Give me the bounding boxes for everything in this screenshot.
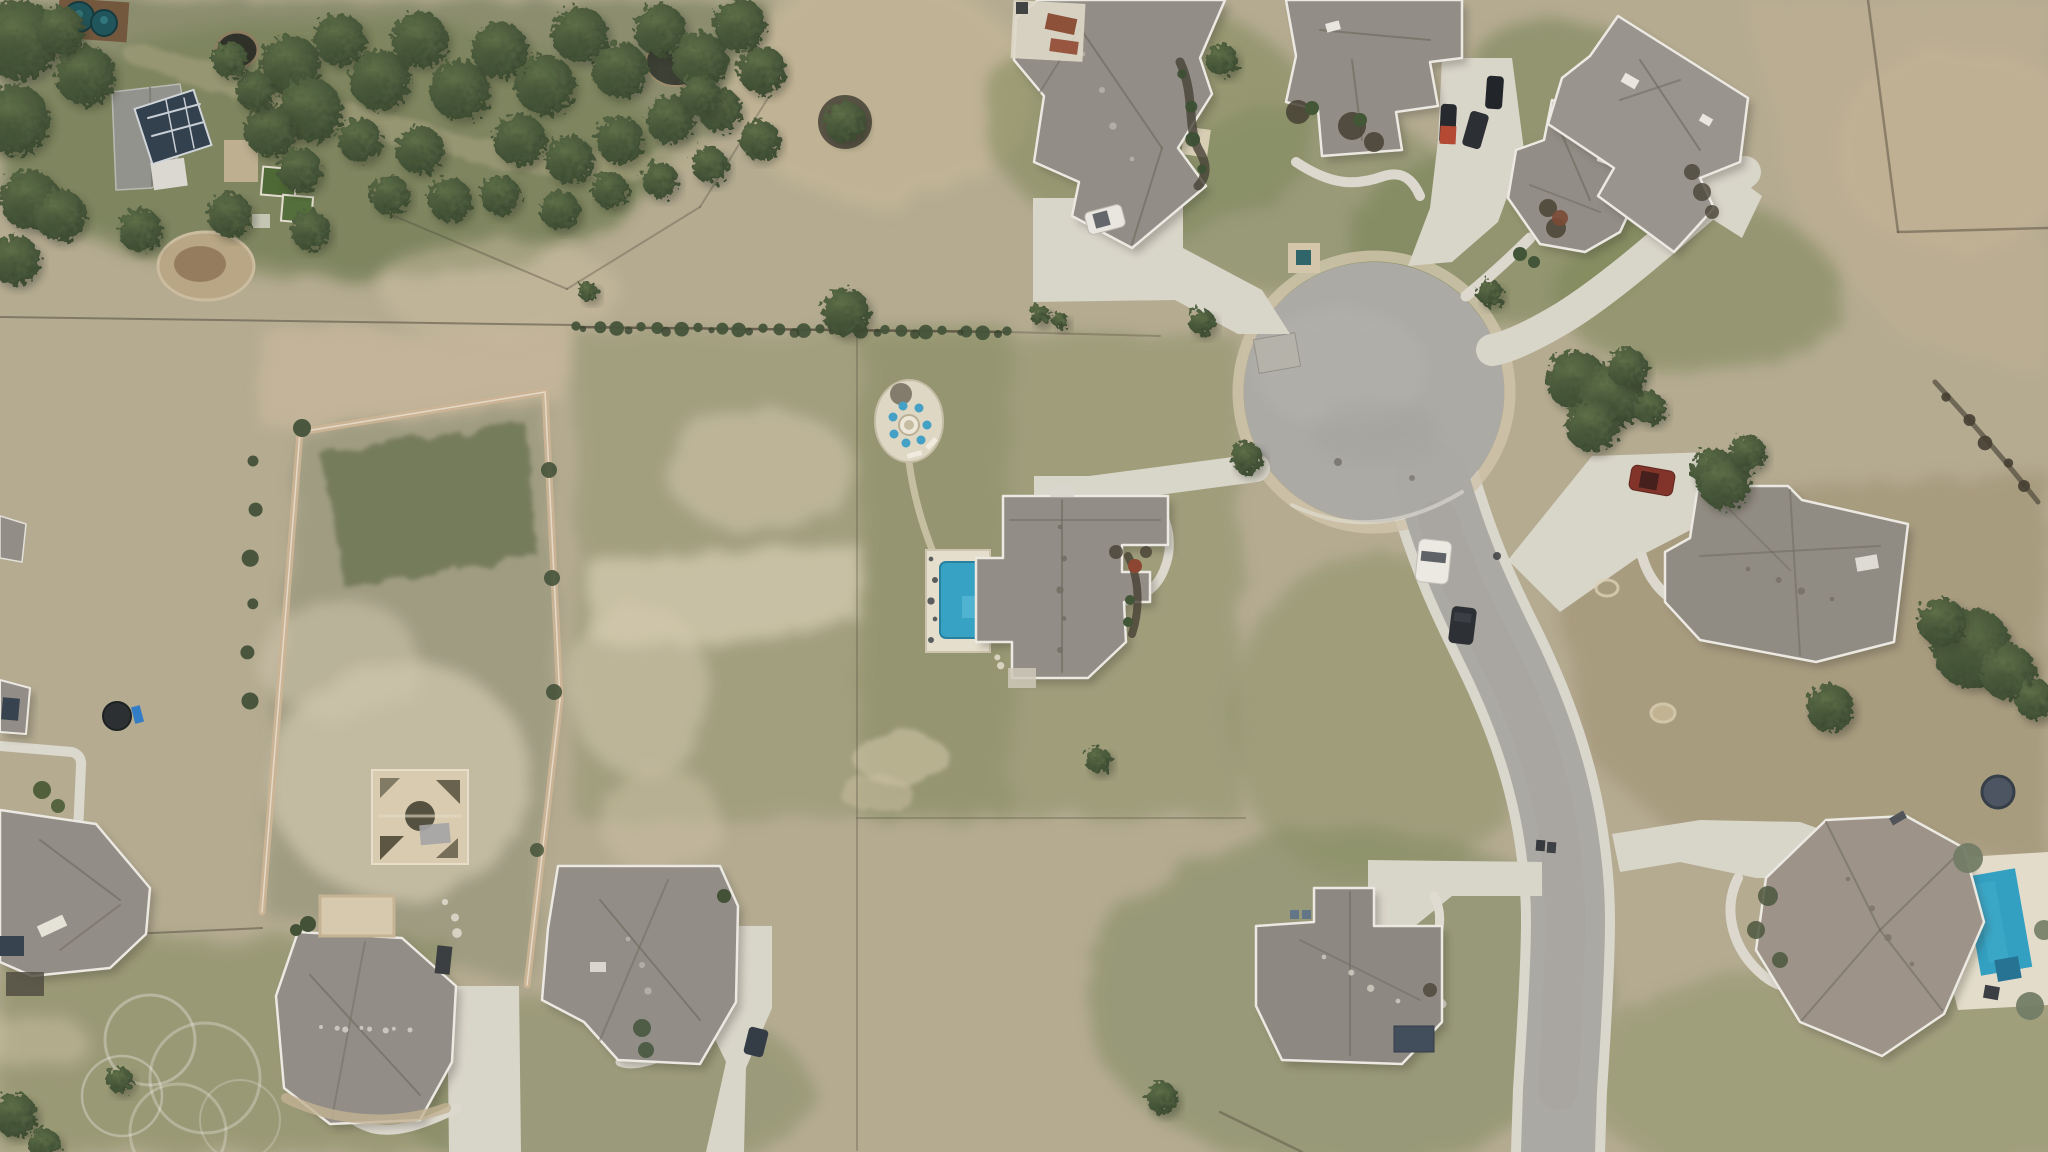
layer-atmosphere bbox=[0, 0, 2048, 1152]
aerial-photo bbox=[0, 0, 2048, 1152]
haze bbox=[0, 0, 2048, 1152]
aerial-photo-viewport: Aerial drone photograph of a suburban cu… bbox=[0, 0, 2048, 1152]
